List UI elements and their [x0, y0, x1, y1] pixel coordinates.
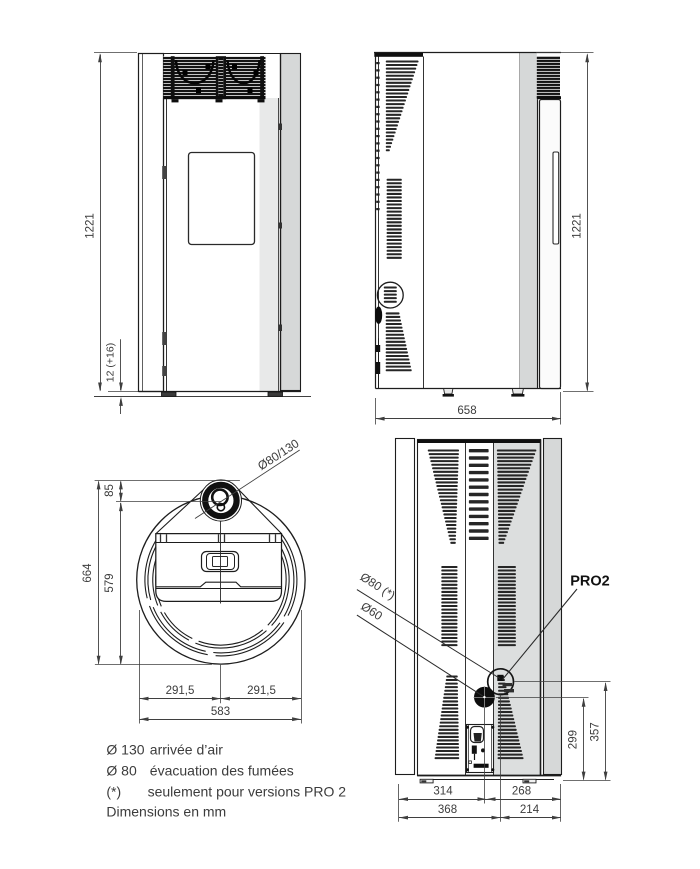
svg-text:664: 664	[82, 563, 94, 583]
svg-text:299: 299	[567, 730, 579, 749]
svg-text:268: 268	[512, 786, 531, 798]
svg-text:Ø 80: Ø 80	[106, 763, 137, 779]
svg-text:214: 214	[520, 804, 540, 816]
svg-text:(*): (*)	[106, 784, 121, 800]
svg-text:PRO2: PRO2	[570, 574, 610, 590]
svg-text:85: 85	[104, 484, 116, 497]
svg-text:1221: 1221	[571, 213, 583, 239]
svg-text:291,5: 291,5	[247, 685, 276, 697]
svg-text:Ø 130: Ø 130	[106, 741, 144, 757]
svg-text:314: 314	[433, 786, 453, 798]
svg-text:291,5: 291,5	[166, 685, 195, 697]
svg-text:seulement pour versions PRO 2: seulement pour versions PRO 2	[148, 784, 347, 800]
svg-text:évacuation des fumées: évacuation des fumées	[150, 763, 294, 779]
svg-text:368: 368	[438, 804, 457, 816]
svg-text:Dimensions en mm: Dimensions en mm	[106, 803, 226, 819]
svg-text:12 (+16): 12 (+16)	[105, 343, 117, 382]
svg-text:arrivée d’air: arrivée d’air	[150, 741, 223, 757]
svg-text:583: 583	[211, 706, 230, 718]
svg-text:357: 357	[589, 722, 601, 741]
svg-text:1221: 1221	[85, 213, 97, 239]
svg-text:579: 579	[104, 573, 116, 592]
svg-text:658: 658	[457, 405, 476, 417]
